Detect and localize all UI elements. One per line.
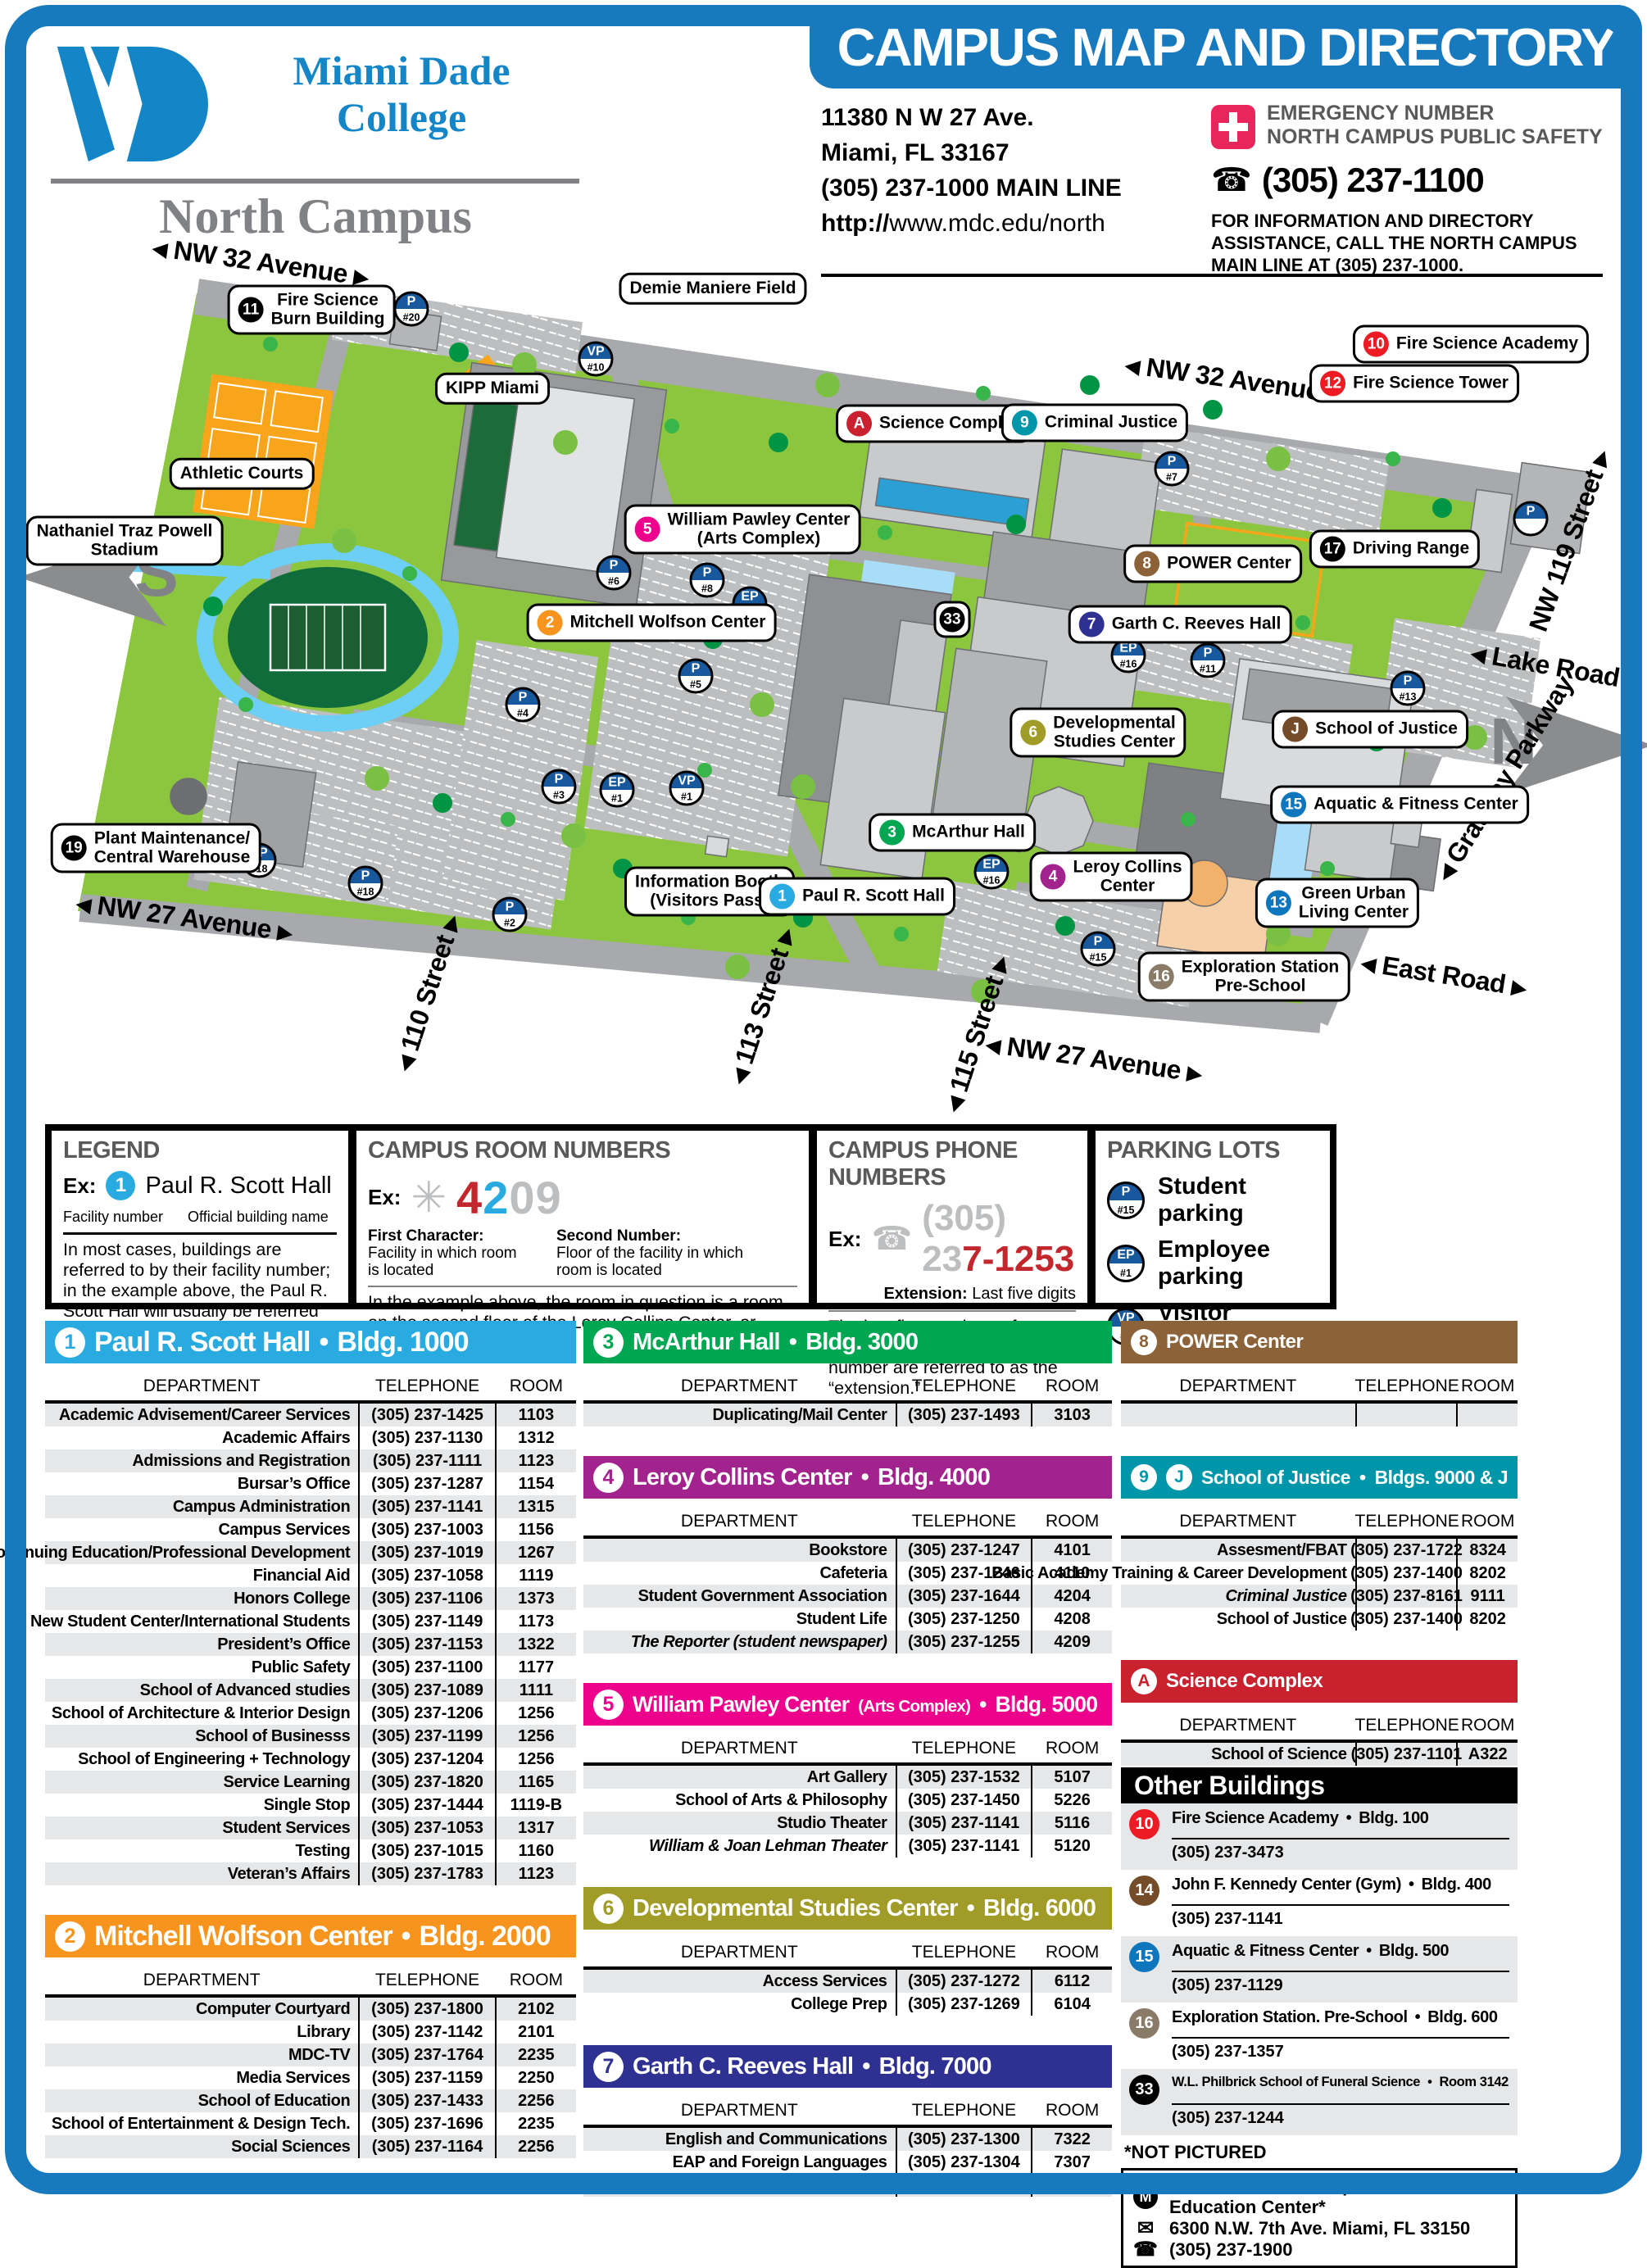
telephone-cell: (305) 237-1800 (358, 1998, 496, 2021)
telephone-cell: (305) 237-1400 (1355, 1608, 1459, 1631)
parking-badge-p#18: P#18 (348, 866, 383, 901)
table-row: School of Advanced studies(305) 237-1089… (45, 1679, 576, 1702)
map-callout: 3McArthur Hall (869, 814, 1036, 852)
department-cell: Social Sciences (45, 2135, 358, 2158)
meek-center-phone: (305) 237-1900 (1169, 2239, 1292, 2261)
parking-badge-p#4: P#4 (506, 687, 541, 723)
facility-number-badge: 9 (1131, 1464, 1157, 1490)
room-cell: 7345 (1032, 2174, 1112, 2197)
parking-badge-p#20: P#20 (394, 292, 429, 327)
room-cell: 1123 (497, 1862, 576, 1885)
facility-number-badge: 1 (55, 1327, 85, 1358)
telephone-cell: (305) 237-1149 (358, 1610, 496, 1633)
room-cell: 4209 (1032, 1631, 1112, 1653)
room-cell: 7307 (1032, 2151, 1112, 2174)
directory-column-1: 1Paul R. Scott Hall•Bldg. 1000DEPARTMENT… (45, 1321, 576, 2188)
telephone-cell: (305) 237-1164 (358, 2135, 496, 2158)
facility-letter-badge: M (1133, 2184, 1158, 2209)
address-line: 11380 N W 27 Ave. (821, 100, 1122, 135)
telephone-cell: (305) 237-1089 (358, 1679, 496, 1702)
parking-type: P (692, 661, 701, 677)
table-row: Computer Courtyard(305) 237-18002102 (45, 1998, 576, 2021)
telephone-cell: (305) 237-1287 (358, 1472, 496, 1495)
department-cell: Honors College (45, 1587, 358, 1610)
table-row: Single Stop(305) 237-14441119-B (45, 1794, 576, 1817)
department-cell: Studio Theater (583, 1812, 896, 1835)
facility-number-badge: 16 (1149, 964, 1174, 990)
building-title: Mitchell Wolfson Center•Bldg. 2000 (94, 1921, 566, 1953)
facility-number-badge: 2 (538, 610, 563, 636)
building-table-header: 1Paul R. Scott Hall•Bldg. 1000 (45, 1321, 576, 1363)
map-callout: 9Criminal Justice (1001, 404, 1188, 442)
table-row: Student Life(305) 237-12504208 (583, 1608, 1112, 1631)
room-cell: 5226 (1032, 1789, 1112, 1812)
second-number-note: Second Number:Floor of the facility in w… (556, 1227, 778, 1279)
room-cell: 1119 (497, 1564, 576, 1587)
map-callout-label: Criminal Justice (1045, 414, 1177, 433)
room-cell: 2256 (497, 2089, 576, 2112)
parking-legend-label: Employee parking (1158, 1236, 1318, 1290)
department-cell: School of Advanced studies (45, 1679, 358, 1702)
facility-number-badge: A (1131, 1668, 1157, 1694)
table-row: Campus Services(305) 237-10031156 (45, 1518, 576, 1541)
table-column-headers: DEPARTMENTTELEPHONEROOM (583, 1499, 1112, 1539)
telephone-cell: (305) 237-1106 (358, 1587, 496, 1610)
parking-type: EP (608, 775, 625, 791)
facility-number-badge: A (846, 411, 872, 437)
table-row: Continuing Education/Professional Develo… (45, 1541, 576, 1564)
department-cell: Library (45, 2021, 358, 2043)
emergency-phone: (305) 237-1100 (1262, 161, 1484, 200)
facility-number-badge: 1 (769, 884, 795, 909)
room-cell: 1256 (497, 1702, 576, 1725)
department-cell: School of Justice (1121, 1608, 1355, 1631)
department-cell: Computer Courtyard (45, 1998, 358, 2021)
facility-number-badge: 17 (1320, 537, 1345, 562)
other-building-name: Aquatic & Fitness Center•Bldg. 500 (1172, 1942, 1509, 1972)
department-cell: Public Safety (45, 1656, 358, 1679)
parking-type: P (1168, 454, 1177, 469)
table-row: Social Sciences(305) 237-11642256 (45, 2135, 576, 2158)
department-cell: Media Services (45, 2066, 358, 2089)
table-row: Library(305) 237-11422101 (45, 2021, 576, 2043)
meek-center-name: Carrie P. Meek Entrepreneurial Education… (1169, 2175, 1505, 2218)
table-row: Academic Advisement/Career Services(305)… (45, 1404, 576, 1427)
map-callout: 17Driving Range (1309, 530, 1480, 569)
building-table: 6Developmental Studies Center•Bldg. 6000… (583, 1887, 1112, 2016)
department-cell: Assesment/FBAT (1121, 1539, 1355, 1562)
parking-badge-ep: EP#1 (1107, 1245, 1145, 1282)
parking-badge-p#5: P#5 (678, 659, 714, 694)
department-cell: Bookstore (583, 1539, 896, 1562)
parking-lot-number: #15 (1090, 951, 1107, 964)
table-row: MDC-TV(305) 237-17642235 (45, 2043, 576, 2066)
not-pictured-note: *NOT PICTURED (1121, 2142, 1518, 2163)
parking-lot-number: #2 (504, 917, 515, 930)
table-row: President’s Office(305) 237-11531322 (45, 1633, 576, 1656)
facility-number-badge: 6 (1020, 720, 1046, 746)
telephone-cell: (305) 237-1269 (896, 1993, 1033, 2016)
page-title-banner: CAMPUS MAP AND DIRECTORY (810, 5, 1642, 88)
facility-number-badge: 14 (1129, 1876, 1159, 1906)
room-cell: 4204 (1032, 1585, 1112, 1608)
building-table-header: 8POWER Center (1121, 1321, 1518, 1363)
telephone-cell: (305) 237-1141 (896, 1812, 1033, 1835)
table-row: Assesment/FBAT(305) 237-17228324 (1121, 1539, 1518, 1562)
telephone-cell: (305) 237-1053 (358, 1817, 496, 1839)
compass-star-icon: ✳ (411, 1173, 447, 1222)
telephone-cell: (305) 237-1199 (358, 1725, 496, 1748)
building-title: School of Justice•Bldgs. 9000 & J (1201, 1467, 1508, 1489)
parking-type: VP (587, 344, 604, 360)
building-table: 3McArthur Hall•Bldg. 3000DEPARTMENTTELEP… (583, 1321, 1112, 1427)
parking-type: P (407, 294, 416, 310)
department-cell: Continuing Education/Professional Develo… (45, 1541, 358, 1564)
parking-lot-number: #10 (588, 361, 605, 374)
table-row: Service Learning(305) 237-18201165 (45, 1771, 576, 1794)
table-row: Basic Academy Training & Career Developm… (1121, 1562, 1518, 1585)
map-callout-label: Demie Maniere Field (629, 279, 796, 298)
department-cell: Academic Advisement/Career Services (45, 1404, 358, 1427)
other-building-name: John F. Kennedy Center (Gym)•Bldg. 400 (1172, 1876, 1509, 1906)
meek-center-name-row: MCarrie P. Meek Entrepreneurial Educatio… (1133, 2175, 1505, 2218)
meek-center-phone-row: ☎(305) 237-1900 (1133, 2239, 1505, 2261)
parking-badge-vp#10: VP#10 (578, 342, 614, 377)
table-column-headers: DEPARTMENTTELEPHONEROOM (45, 1957, 576, 1998)
other-building-name: Exploration Station. Pre-School•Bldg. 60… (1172, 2008, 1509, 2039)
phone-icon: ☎ (1133, 2239, 1158, 2261)
info-note-line: ASSISTANCE, CALL THE NORTH CAMPUS (1211, 232, 1588, 254)
department-cell: Service Learning (45, 1771, 358, 1794)
telephone-cell: (305) 237-1820 (358, 1771, 496, 1794)
telephone-cell: (305) 237-1444 (358, 1794, 496, 1817)
college-name-line1: Miami Dade (209, 48, 594, 94)
facility-number-badge: 8 (1131, 1329, 1157, 1355)
department-cell: Testing (45, 1839, 358, 1862)
building-table-header: 7Garth C. Reeves Hall•Bldg. 7000 (583, 2045, 1112, 2088)
table-row: Duplicating/Mail Center(305) 237-1493310… (583, 1404, 1112, 1427)
telephone-cell: (305) 237-1433 (358, 2089, 496, 2112)
room-cell: 9111 (1458, 1585, 1518, 1608)
map-callout: Demie Maniere Field (619, 273, 806, 305)
building-title: POWER Center (1166, 1331, 1508, 1354)
college-name: Miami Dade College (209, 48, 594, 141)
facility-number-badge: 16 (1129, 2008, 1159, 2039)
emergency-label: EMERGENCY NUMBER (1267, 102, 1603, 125)
department-cell: School of Education (45, 2089, 358, 2112)
room-cell: 1123 (497, 1449, 576, 1472)
telephone-cell: (305) 237-1142 (358, 2021, 496, 2043)
telephone-cell: (305) 237-1532 (896, 1766, 1033, 1789)
other-buildings-header: Other Buildings (1121, 1767, 1518, 1803)
table-row: Honors College(305) 237-11061373 (45, 1587, 576, 1610)
parking-type: EP (741, 589, 758, 605)
telephone-cell: (305) 237-1255 (896, 1631, 1033, 1653)
parking-type: P (555, 772, 564, 787)
parking-type: P (519, 690, 528, 705)
department-cell: School of Engineering + Technology (45, 1748, 358, 1771)
main-line-phone: (305) 237-1000 MAIN LINE (821, 170, 1122, 206)
telephone-cell (1355, 1404, 1459, 1427)
second-number-text: Floor of the facility in which room is l… (556, 1245, 743, 1279)
legend-title: LEGEND (63, 1137, 337, 1164)
map-callout: KIPP Miami (435, 373, 550, 405)
room-cell: 1156 (497, 1518, 576, 1541)
map-callout: Athletic Courts (170, 458, 315, 490)
campus-name: North Campus (98, 188, 533, 245)
parking-lot-number: #13 (1400, 691, 1417, 704)
map-callout-label: Aquatic & Fitness Center (1314, 796, 1518, 814)
phone-extension: 7-1253 (962, 1239, 1074, 1279)
department-cell: Bursar’s Office (45, 1472, 358, 1495)
department-cell: Access Services (583, 1970, 896, 1993)
first-character-note: First Character:Facility in which room i… (368, 1227, 524, 1279)
telephone-cell: (305) 237-1111 (358, 1449, 496, 1472)
room-cell: 4208 (1032, 1608, 1112, 1631)
legend-section: LEGEND Ex: 1 Paul R. Scott Hall Facility… (52, 1131, 348, 1303)
map-callout-label: Garth C. Reeves Hall (1112, 615, 1282, 634)
other-building-phone: (305) 237-1244 (1172, 2105, 1509, 2128)
extension-text: Last five digits (968, 1285, 1076, 1303)
map-callout-label: Science Complex (879, 415, 1022, 433)
other-building-phone: (305) 237-1141 (1172, 1906, 1509, 1929)
telephone-cell: (305) 237-1300 (896, 2128, 1033, 2151)
parking-badge-p#7: P#7 (1155, 451, 1190, 487)
room-cell (1458, 1404, 1518, 1427)
map-callout: 4Leroy CollinsCenter (1029, 852, 1192, 902)
header-rule (821, 274, 1603, 277)
map-callout: 6DevelopmentalStudies Center (1010, 708, 1186, 758)
room-cell: 1315 (497, 1495, 576, 1518)
example-building-name: Paul R. Scott Hall (145, 1173, 331, 1200)
department-cell: Art Gallery (583, 1766, 896, 1789)
room-cell: 1177 (497, 1656, 576, 1679)
telephone-cell: (305) 237-1696 (358, 2112, 496, 2135)
college-name-line2: College (209, 94, 594, 141)
department-cell: English and Communications (583, 2128, 896, 2151)
map-callout: 16Exploration StationPre-School (1138, 952, 1350, 1002)
url-scheme: http:// (821, 210, 889, 237)
table-column-headers: DEPARTMENTTELEPHONEROOM (1121, 1703, 1518, 1743)
map-callout-label: McArthur Hall (912, 823, 1025, 842)
directory-column-2: 3McArthur Hall•Bldg. 3000DEPARTMENTTELEP… (583, 1321, 1112, 2226)
phone-numbers-title: CAMPUS PHONE NUMBERS (828, 1137, 1076, 1191)
telephone-cell: (305) 237-1493 (896, 1404, 1033, 1427)
room-cell: 3103 (1032, 1404, 1112, 1427)
parking-lot-number: #7 (1166, 471, 1177, 484)
map-callout: 8POWER Center (1123, 545, 1302, 583)
facility-number-badge: 33 (1129, 2075, 1159, 2105)
parking-lot-number: #8 (701, 583, 713, 596)
room-cell: 2235 (497, 2043, 576, 2066)
building-table-header: 5William Pawley Center(Arts Complex)•Bld… (583, 1683, 1112, 1726)
other-building-item: 10Fire Science Academy•Bldg. 100(305) 23… (1121, 1803, 1518, 1870)
telephone-cell: (305) 237-1015 (358, 1839, 496, 1862)
room-first-char: 4 (456, 1172, 483, 1223)
emergency-label2: NORTH CAMPUS PUBLIC SAFETY (1267, 125, 1603, 149)
parking-lots-title: PARKING LOTS (1107, 1137, 1318, 1164)
telephone-cell: (305) 237-1764 (358, 2043, 496, 2066)
map-callout-label: Leroy CollinsCenter (1073, 859, 1182, 896)
example-label: Ex: (63, 1173, 96, 1199)
department-cell: Mathematics (583, 2174, 896, 2197)
other-building-phone: (305) 237-1129 (1172, 1972, 1509, 1995)
building-table-header: 2Mitchell Wolfson Center•Bldg. 2000 (45, 1915, 576, 1957)
parking-badge-p#8: P#8 (690, 563, 725, 598)
room-cell: 5107 (1032, 1766, 1112, 1789)
room-cell: 8202 (1458, 1608, 1518, 1631)
room-cell: 1312 (497, 1427, 576, 1449)
building-table: 9JSchool of Justice•Bldgs. 9000 & JDEPAR… (1121, 1456, 1518, 1631)
room-cell: 4101 (1032, 1539, 1112, 1562)
map-callout-label: POWER Center (1167, 555, 1291, 574)
parking-lot-number: #4 (517, 707, 529, 720)
room-cell: A322 (1458, 1743, 1518, 1766)
room-cell: 1165 (497, 1771, 576, 1794)
page-title: CAMPUS MAP AND DIRECTORY (837, 16, 1615, 78)
room-cell: 5116 (1032, 1812, 1112, 1835)
building-table: 8POWER CenterDEPARTMENTTELEPHONEROOM (1121, 1321, 1518, 1427)
emergency-cross-icon (1211, 105, 1255, 149)
table-row: Student Services(305) 237-10531317 (45, 1817, 576, 1839)
other-building-item: 14John F. Kennedy Center (Gym)•Bldg. 400… (1121, 1870, 1518, 1936)
map-callout: Nathaniel Traz PowellStadium (26, 516, 224, 566)
facility-number-badge: 7 (593, 2052, 624, 2082)
address-line: Miami, FL 33167 (821, 135, 1122, 170)
table-row: William & Joan Lehman Theater(305) 237-1… (583, 1835, 1112, 1857)
parking-type: P (1527, 504, 1536, 519)
not-pictured-box: MCarrie P. Meek Entrepreneurial Educatio… (1121, 2168, 1518, 2268)
room-cell: 2250 (497, 2066, 576, 2089)
facility-number-badge: 8 (1134, 551, 1159, 577)
table-row: Bursar’s Office(305) 237-12871154 (45, 1472, 576, 1495)
department-cell: Duplicating/Mail Center (583, 1404, 896, 1427)
map-callout-label: Paul R. Scott Hall (802, 887, 945, 906)
facility-number-badge: 10 (1129, 1809, 1159, 1839)
map-callout: 15Aquatic & Fitness Center (1270, 786, 1529, 824)
parking-lot-number: #16 (1120, 658, 1137, 671)
example-label: Ex: (828, 1227, 861, 1252)
telephone-cell: (305) 237-1250 (896, 1608, 1033, 1631)
telephone-cell: (305) 237-1130 (358, 1427, 496, 1449)
facility-number-badge: 13 (1266, 891, 1291, 916)
parking-legend-item: EP#1Employee parking (1107, 1236, 1318, 1290)
telephone-cell: (305) 237-1204 (358, 1748, 496, 1771)
map-callout: 2Mitchell Wolfson Center (527, 604, 777, 642)
map-callout-label: Mitchell Wolfson Center (570, 614, 766, 633)
facility-number-label: Facility number (63, 1209, 163, 1226)
table-column-headers: DEPARTMENTTELEPHONEROOM (583, 1726, 1112, 1766)
department-cell: Veteran’s Affairs (45, 1862, 358, 1885)
map-callout-label: Fire Science Tower (1353, 374, 1509, 393)
table-row: Public Safety(305) 237-11001177 (45, 1656, 576, 1679)
table-row: Access Services(305) 237-12726112 (583, 1970, 1112, 1993)
table-row: The Reporter (student newspaper)(305) 23… (583, 1631, 1112, 1653)
map-callout-label: Green UrbanLiving Center (1299, 885, 1409, 922)
room-cell: 1160 (497, 1839, 576, 1862)
table-row: College Prep(305) 237-12696104 (583, 1993, 1112, 2016)
telephone-cell: (305) 237-1019 (358, 1541, 496, 1564)
room-cell: 1317 (497, 1817, 576, 1839)
room-numbers-title: CAMPUS ROOM NUMBERS (368, 1137, 797, 1164)
example-label: Ex: (368, 1185, 401, 1210)
telephone-cell: (305) 237-1722 (1355, 1539, 1459, 1562)
parking-badge-ep#16: EP#16 (974, 855, 1010, 890)
map-callout-label: Exploration StationPre-School (1182, 959, 1340, 996)
other-building-item: 15Aquatic & Fitness Center•Bldg. 500(305… (1121, 1936, 1518, 2003)
table-row: School of Entertainment & Design Tech.(3… (45, 2112, 576, 2135)
parking-type: P (361, 869, 370, 884)
room-cell: 1111 (497, 1679, 576, 1702)
parking-lot-number: #1 (681, 791, 692, 804)
department-cell: Student Life (583, 1608, 896, 1631)
building-table: 7Garth C. Reeves Hall•Bldg. 7000DEPARTME… (583, 2045, 1112, 2197)
department-cell: Campus Services (45, 1518, 358, 1541)
facility-number-badge: 33 (940, 607, 965, 633)
department-cell: Student Government Association (583, 1585, 896, 1608)
telephone-cell: (305) 237-1101 (1355, 1743, 1459, 1766)
facility-number-badge: 9 (1012, 411, 1037, 436)
parking-lot-number: #18 (357, 886, 374, 899)
map-callout: 11Fire ScienceBurn Building (228, 285, 396, 335)
table-row: Student Government Association(305) 237-… (583, 1585, 1112, 1608)
header-divider (51, 179, 579, 184)
room-cell: 1154 (497, 1472, 576, 1495)
parking-type: P (610, 558, 619, 574)
telephone-cell: (305) 237-1783 (358, 1862, 496, 1885)
facility-number-badge: 12 (1320, 371, 1345, 397)
building-table-header: AScience Complex (1121, 1660, 1518, 1703)
other-building-phone: (305) 237-3473 (1172, 1839, 1509, 1862)
room-numbers-section: CAMPUS ROOM NUMBERS Ex: ✳ 4209 First Cha… (356, 1131, 809, 1303)
parking-type: VP (678, 773, 695, 789)
parking-badge-p#2: P#2 (492, 897, 528, 932)
info-note-line: FOR INFORMATION AND DIRECTORY (1211, 210, 1588, 232)
map-callout-label: KIPP Miami (446, 379, 539, 398)
building-table: AScience ComplexDEPARTMENTTELEPHONEROOMS… (1121, 1660, 1518, 1766)
other-building-phone: (305) 237-1357 (1172, 2039, 1509, 2062)
map-callout: 33 (934, 601, 971, 638)
other-building-name: Fire Science Academy•Bldg. 100 (1172, 1809, 1509, 1839)
telephone-cell: (305) 237-8161 (1355, 1585, 1459, 1608)
room-cell: 1119-B (497, 1794, 576, 1817)
facility-number-badge: 1 (106, 1171, 135, 1200)
room-rest: 09 (509, 1172, 561, 1223)
building-title: Science Complex (1166, 1670, 1508, 1693)
map-callout-label: Nathaniel Traz PowellStadium (37, 523, 213, 560)
table-row: School of Businesss(305) 237-11991256 (45, 1725, 576, 1748)
telephone-cell: (305) 237-1003 (358, 1518, 496, 1541)
table-column-headers: DEPARTMENTTELEPHONEROOM (583, 1930, 1112, 1970)
parking-badge-p#3: P#3 (542, 769, 577, 805)
department-cell: School of Science (1121, 1743, 1355, 1766)
building-title: Paul R. Scott Hall•Bldg. 1000 (94, 1327, 566, 1359)
parking-lot-number: #6 (608, 575, 619, 588)
room-cell: 8324 (1458, 1539, 1518, 1562)
extension-label: Extension: (883, 1285, 967, 1303)
map-callout-label: Fire ScienceBurn Building (271, 292, 385, 329)
building-title: Leroy Collins Center•Bldg. 4000 (633, 1464, 1102, 1491)
room-cell: 2101 (497, 2021, 576, 2043)
map-callout: 5William Pawley Center(Arts Complex) (624, 505, 861, 555)
department-cell: MDC-TV (45, 2043, 358, 2066)
info-note-line: MAIN LINE AT (305) 237-1000. (1211, 254, 1588, 276)
facility-number-badge: 3 (593, 1327, 624, 1358)
parking-legend-label: Student parking (1158, 1173, 1318, 1227)
room-cell: 1173 (497, 1610, 576, 1633)
room-second-char: 2 (483, 1172, 509, 1223)
telephone-cell: (305) 237-1644 (896, 1585, 1033, 1608)
